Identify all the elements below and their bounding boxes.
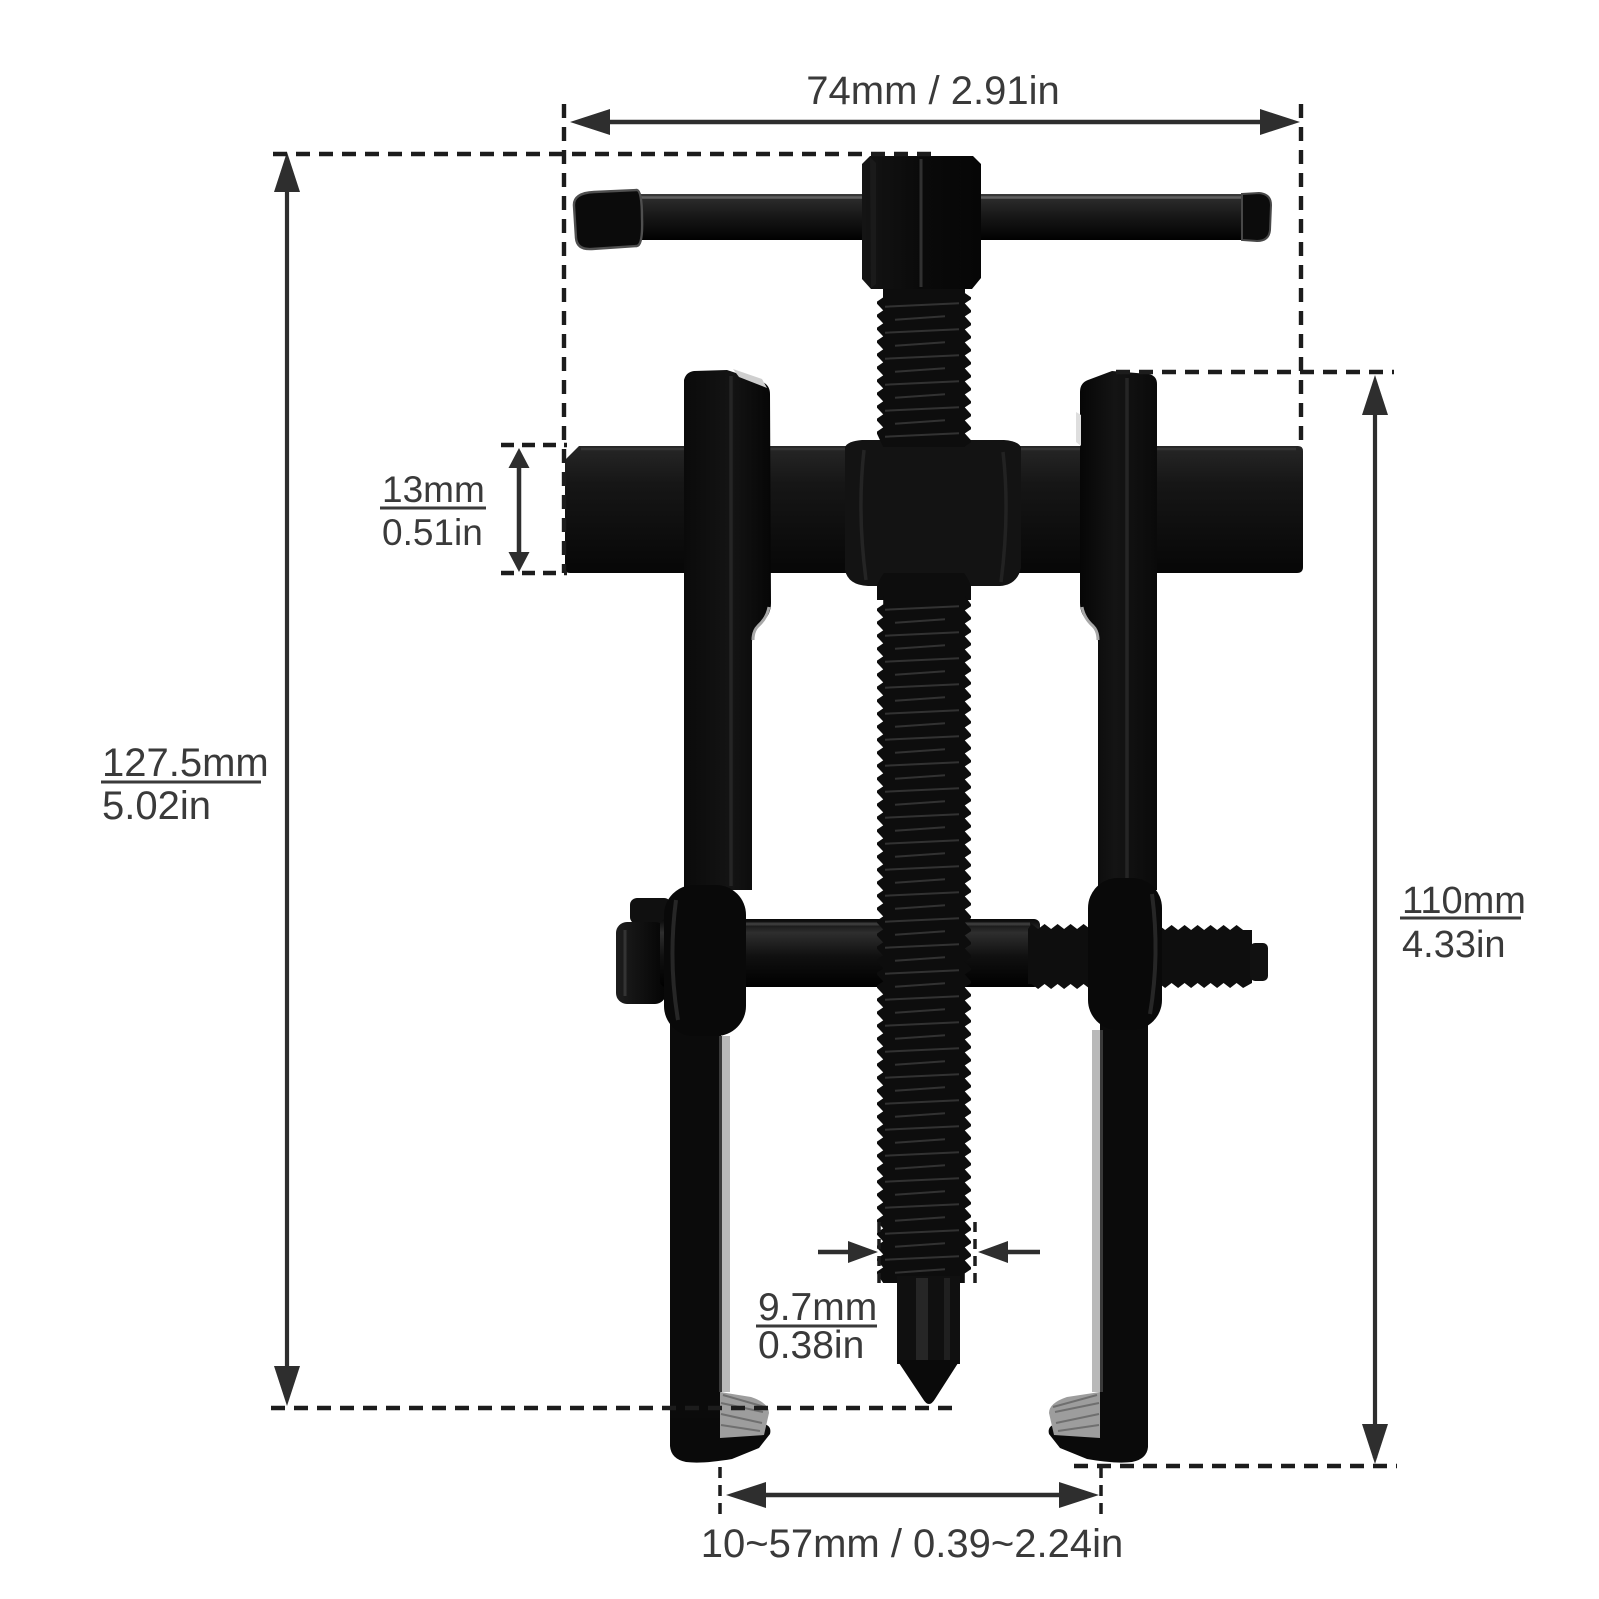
svg-text:10~57mm / 0.39~2.24in: 10~57mm / 0.39~2.24in xyxy=(701,1522,1124,1566)
svg-text:5.02in: 5.02in xyxy=(102,784,211,828)
svg-text:74mm / 2.91in: 74mm / 2.91in xyxy=(806,69,1059,113)
svg-text:0.51in: 0.51in xyxy=(382,512,483,553)
svg-text:9.7mm: 9.7mm xyxy=(758,1286,877,1329)
svg-text:110mm: 110mm xyxy=(1402,880,1526,922)
svg-text:4.33in: 4.33in xyxy=(1402,924,1506,966)
svg-text:0.38in: 0.38in xyxy=(758,1324,864,1367)
svg-text:13mm: 13mm xyxy=(382,469,485,510)
svg-text:127.5mm: 127.5mm xyxy=(102,741,269,785)
